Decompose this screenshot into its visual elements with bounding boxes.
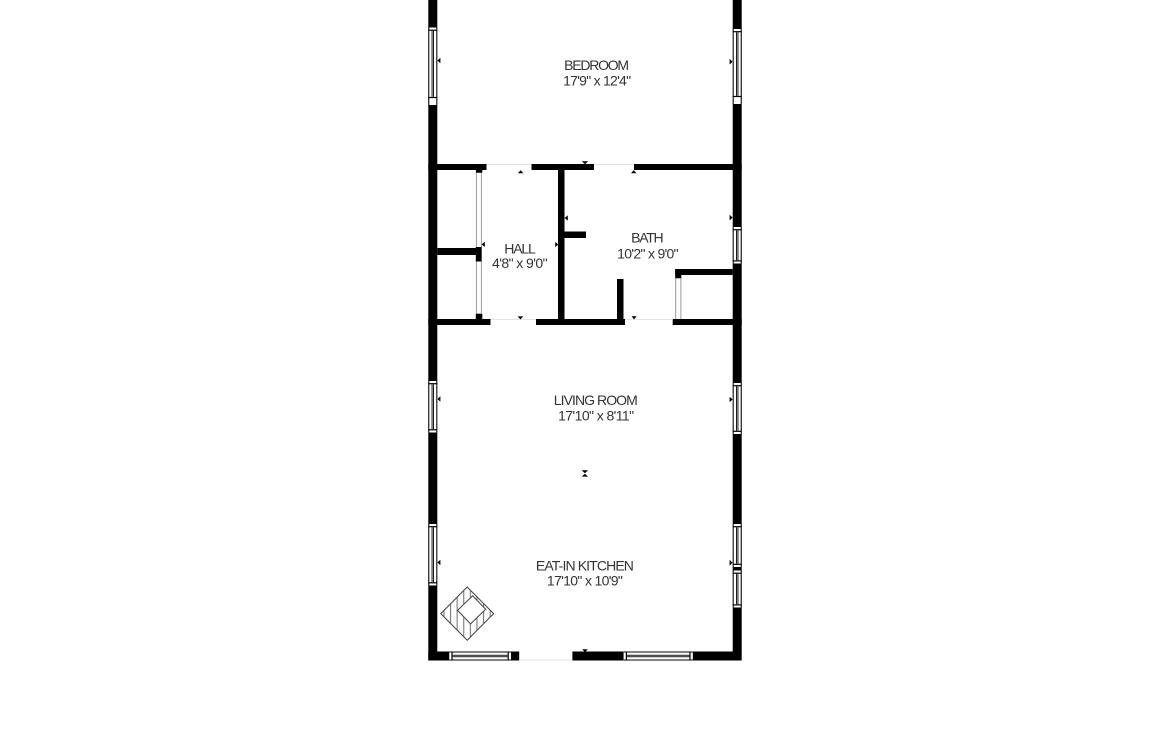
svg-text:17'10" x 8'11": 17'10" x 8'11" (558, 407, 634, 423)
svg-text:10'2" x 9'0": 10'2" x 9'0" (617, 246, 679, 262)
svg-text:BATH: BATH (631, 230, 664, 246)
svg-text:17'10" x 10'9": 17'10" x 10'9" (547, 573, 623, 589)
svg-text:LIVING ROOM: LIVING ROOM (554, 392, 638, 408)
svg-text:BEDROOM: BEDROOM (564, 57, 629, 73)
svg-text:17'9" x 12'4": 17'9" x 12'4" (563, 72, 631, 88)
svg-text:4'8" x 9'0": 4'8" x 9'0" (492, 255, 548, 271)
svg-text:EAT-IN KITCHEN: EAT-IN KITCHEN (536, 558, 634, 574)
